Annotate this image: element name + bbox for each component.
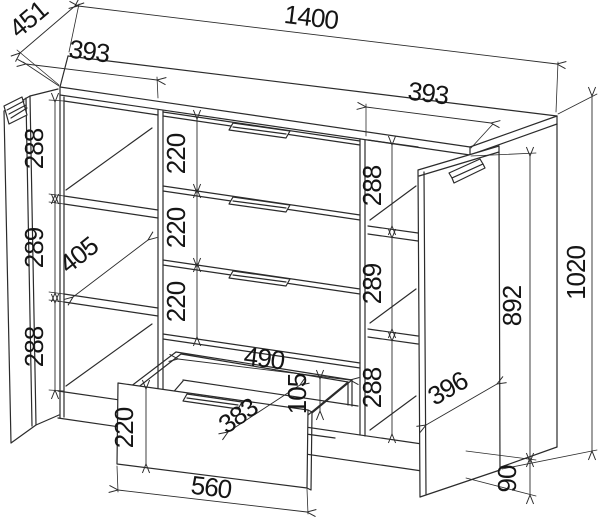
left-shelf-1 [64,196,158,210]
dim-left-section-width: 393 [67,34,111,69]
dim-plinth-height: 90 [492,465,522,492]
dim-drawer-height-3: 220 [161,281,191,322]
dim-left-shelf-height-1: 288 [19,128,49,169]
dim-right-section-width: 393 [406,76,450,111]
dim-right-shelf-height-3: 288 [357,367,387,408]
right-door [418,146,500,497]
dim-opening-width: 490 [242,341,286,376]
dim-right-shelf-height-2: 289 [357,263,387,304]
dim-drawer-height-1: 220 [161,133,191,174]
dim-drawer-height-2: 220 [161,207,191,248]
right-shelf-2 [368,329,418,344]
dim-top-depth: 451 [3,0,54,44]
dim-right-shelf-height-1: 288 [357,165,387,206]
dim-left-shelf-height-3: 288 [19,326,49,367]
dim-drawer-box-height: 105 [282,373,312,414]
dim-drawer-front-height: 220 [109,407,139,448]
left-shelf-2 [64,294,158,308]
drawer-stack [163,112,360,368]
dim-drawer-front-width: 560 [189,470,233,505]
dim-left-shelf-height-2: 289 [19,227,49,268]
drawing-canvas: 1400 451 393 393 288 289 288 405 220 220… [0,0,600,517]
right-door-panel [418,146,500,497]
drawer-box-right-rim [308,380,352,415]
dim-line-right-section-width [366,107,491,123]
dim-total-width: 1400 [283,0,341,35]
dim-shelf-depth: 405 [53,230,104,279]
dim-total-height: 1020 [561,246,591,300]
furniture-dimension-drawing: 1400 451 393 393 288 289 288 405 220 220… [0,0,600,517]
dim-cabinet-body-height: 892 [497,285,527,326]
right-shelf-1 [368,226,418,241]
